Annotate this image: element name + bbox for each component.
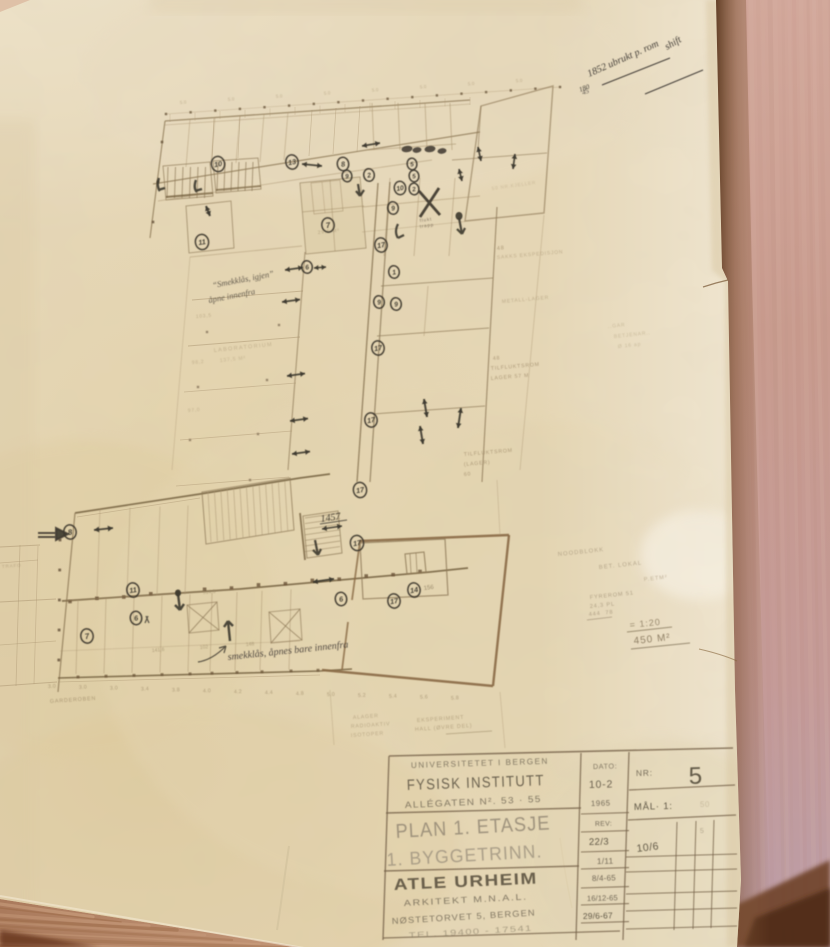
svg-text:102: 102 — [200, 644, 209, 651]
svg-text:10-2: 10-2 — [589, 778, 614, 791]
svg-text:DATO:: DATO: — [593, 761, 618, 771]
svg-text:1/11: 1/11 — [597, 857, 614, 866]
svg-text:5.0: 5.0 — [468, 81, 475, 87]
svg-text:5.0: 5.0 — [516, 78, 523, 84]
svg-text:11: 11 — [198, 237, 207, 247]
svg-text:50: 50 — [700, 800, 710, 809]
svg-text:NR:: NR: — [636, 768, 653, 778]
svg-text:5.0: 5.0 — [180, 99, 187, 105]
svg-text:8/4-65: 8/4-65 — [592, 873, 616, 883]
svg-text:3.0: 3.0 — [48, 684, 56, 690]
svg-text:5.0: 5.0 — [420, 84, 427, 90]
svg-text:3.8: 3.8 — [172, 687, 180, 693]
svg-text:60: 60 — [464, 471, 472, 478]
svg-text:5.0: 5.0 — [324, 90, 331, 96]
svg-text:5.4: 5.4 — [389, 693, 397, 699]
svg-text:22/3: 22/3 — [589, 837, 609, 848]
svg-text:5.6: 5.6 — [420, 694, 428, 700]
svg-text:29/6-67: 29/6-67 — [583, 910, 613, 921]
svg-text:5: 5 — [688, 763, 702, 790]
svg-text:MÅL· 1:: MÅL· 1: — [634, 801, 673, 813]
svg-text:4.0: 4.0 — [203, 688, 211, 694]
svg-text:97,0: 97,0 — [188, 407, 201, 414]
svg-text:148: 148 — [246, 641, 255, 648]
svg-text:5.0: 5.0 — [372, 87, 379, 93]
svg-text:10: 10 — [396, 185, 405, 193]
svg-text:48: 48 — [493, 355, 501, 362]
svg-text:10: 10 — [213, 159, 222, 169]
svg-text:REV:: REV: — [595, 821, 612, 828]
svg-text:5.2: 5.2 — [358, 693, 366, 699]
svg-text:5.0: 5.0 — [327, 692, 335, 698]
svg-text:5: 5 — [700, 828, 705, 835]
svg-text:13: 13 — [287, 157, 296, 167]
svg-text:16/12-65: 16/12-65 — [587, 893, 618, 903]
svg-text:1965: 1965 — [591, 799, 611, 808]
svg-text:514,3: 514,3 — [203, 589, 216, 596]
svg-text:141,6: 141,6 — [152, 647, 165, 654]
svg-text:3.0: 3.0 — [79, 684, 87, 690]
svg-text:11: 11 — [129, 585, 138, 595]
svg-text:4.8: 4.8 — [296, 691, 304, 697]
svg-text:4.2: 4.2 — [234, 689, 242, 695]
svg-text:3.0: 3.0 — [110, 685, 118, 691]
svg-text:48: 48 — [497, 245, 505, 252]
svg-text:98,2: 98,2 — [192, 359, 205, 366]
svg-text:4.4: 4.4 — [265, 690, 273, 696]
svg-text:5.0: 5.0 — [276, 93, 283, 99]
svg-text:14: 14 — [409, 585, 418, 595]
svg-text:3.4: 3.4 — [141, 686, 149, 692]
svg-text:5.0: 5.0 — [228, 96, 235, 102]
svg-text:5.8: 5.8 — [451, 695, 459, 701]
